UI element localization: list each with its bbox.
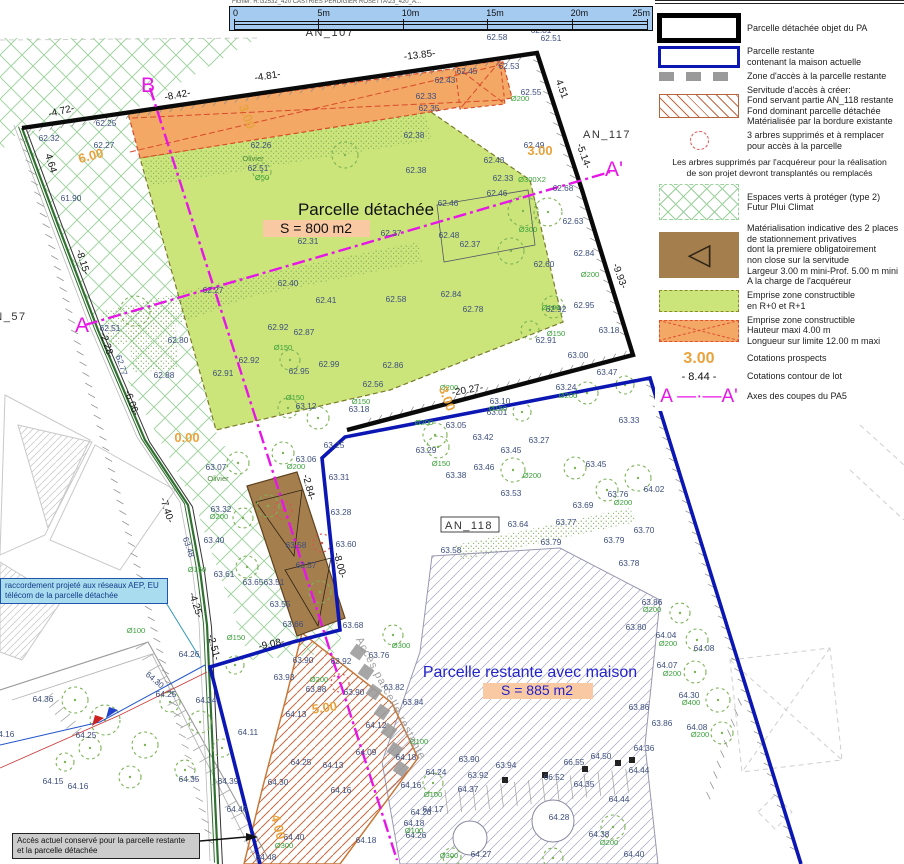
elevation-label: 62.60 [534,259,555,269]
elevation-label: 63.69 [573,500,594,510]
legend-swatch-blue-icon [658,46,740,68]
legend-swatch-wrap [657,184,741,220]
legend-swatch-wrap [657,131,741,150]
elevation-label: 63.12 [296,401,317,411]
tree-diameter-label: Ø200 [511,94,530,103]
elevation-label: 64.13 [323,760,344,770]
tree-diameter-label: Ø200 [663,669,682,678]
elevation-label: 63.84 [403,697,424,707]
legend-item-8: Emprise zone constructible en R+0 et R+1 [657,290,902,312]
tree-diameter-label: Ø100 [127,626,146,635]
scale-tick-label: 10m [402,8,420,18]
elevation-label: 62.92 [239,355,260,365]
elevation-label: 62.95 [289,366,310,376]
elevation-label: 66.52 [544,772,565,782]
elevation-label: 63.47 [597,367,618,377]
tree-diameter-label: Ø150 [489,404,508,413]
tree-diameter-label: Ø150 [274,343,293,352]
elevation-label: 63.79 [541,537,562,547]
elevation-label: 62.78 [463,304,484,314]
elevation-label: 62.56 [363,379,384,389]
title-s800: S = 800 m2 [280,220,352,236]
elevation-label: 62.84 [574,248,595,258]
legend-swatch-wrap: A —·—A' [657,386,741,408]
callout-utilities: raccordement projeté aux réseaux AEP, EU… [0,578,168,604]
legend-text: Emprise zone constructible en R+0 et R+1 [747,290,855,311]
scale-tick-label: 5m [317,8,330,18]
elevation-label: 63.18 [599,325,620,335]
tree-diameter-label: Ø200 [415,418,434,427]
legend-item-1: Parcelle restante contenant la maison ac… [657,46,902,68]
elevation-label: 62.53 [499,61,520,71]
legend-text: Axes des coupes du PA5 [747,391,847,402]
elevation-label: 63.28 [331,507,352,517]
legend-swatch-wrap: 3.00 [657,350,741,368]
tree-diameter-label: Ø150 [227,633,246,642]
scale-tick [487,19,488,30]
elevation-label: 64.18 [356,835,377,845]
tree-diameter-label: Ø150 [432,459,451,468]
tree-diameter-label: Ø50 [255,173,269,182]
elevation-label: 63.92 [331,656,352,666]
elevation-label: 64.39 [218,776,239,786]
elevation-label: 64.02 [644,484,665,494]
neighbor-line [742,648,830,772]
legend-item-6: Espaces verts à protéger (type 2) Futur … [657,184,902,220]
legend-swatch-diamond-icon [659,184,739,220]
elevation-label: 63.60 [336,539,357,549]
elevation-label: 64.25 [76,730,97,740]
tree-diameter-label: Ø200 [659,639,678,648]
tree-diameter-label: Ø400 [682,698,701,707]
scale-bar: 05m10m15m20m25m [229,6,653,31]
elevation-label: 63.53 [501,488,522,498]
elevation-label: 64.36 [33,694,54,704]
elevation-label: 62.51 [248,163,269,173]
elevation-label: 64.40 [624,849,645,859]
legend-note: Les arbres supprimés par l'acquéreur pou… [657,157,902,178]
elevation-label: 63.80 [626,622,647,632]
elevation-label: 63.66 [283,619,304,629]
elevation-label: 64.24 [426,767,447,777]
legend-swatch-wrap [657,290,741,312]
driveway [0,642,268,864]
tree-diameter-label: Ø200 [210,512,229,521]
elevation-label: 64.44 [629,765,650,775]
elevation-label: 62.25 [96,118,117,128]
cotation-lot: -7.40- [157,496,176,524]
legend-swatch-wrap [657,94,741,118]
tree-diameter-label: Ø200 [559,391,578,400]
cotation-lot: -8.42- [164,88,192,103]
elevation-label: 63.90 [459,754,480,764]
callout-access-note: Accès actuel conservé pour la parcelle r… [12,833,200,859]
legend-item-9: Emprise zone constructible Hauteur maxi … [657,315,902,347]
elevation-label: 64.16 [0,729,15,739]
elevation-label: 62.63 [563,216,584,226]
parcel-id-label: AN_57 [0,311,27,323]
elevation-label: 62.68 [553,183,574,193]
elevation-label: 63.77 [556,517,577,527]
elevation-label: 63.42 [473,432,494,442]
tree-diameter-label: Ø200 [614,498,633,507]
legend-swatch-wrap [657,13,741,43]
legend-item-2: Zone d'accès à la parcelle restante [657,71,902,82]
axis-letter: B [141,74,155,97]
legend-item-4: 3 arbres supprimés et à remplacer pour a… [657,130,902,151]
scale-tick [572,19,573,30]
elevation-label: 63.00 [568,350,589,360]
elevation-label: 63.45 [501,445,522,455]
elevation-label: 63.40 [204,535,225,545]
legend-item-12: A —·—A'Axes des coupes du PA5 [657,386,902,408]
elevation-label: 63.90 [293,655,314,665]
elevation-label: 64.25 [291,757,312,767]
legend-item-11: - 8.44 -Cotations contour de lot [657,371,902,383]
elevation-label: 62.58 [386,294,407,304]
elevation-label: 64.16 [68,781,89,791]
elevation-label: 63.58 [286,540,307,550]
elevation-label: 62.27 [203,285,224,295]
elevation-label: 62.40 [278,278,299,288]
title-s885: S = 885 m2 [501,682,573,698]
legend-text: Zone d'accès à la parcelle restante [747,71,886,82]
legend-item-7: ◁Matérialisation indicative des 2 places… [657,223,902,287]
elevation-label: 64.48 [256,852,277,862]
legend-swatch-wrap [657,72,741,81]
legend-text: Servitude d'accès à créer: Fond servant … [747,85,893,127]
elevation-label: 63.86 [652,718,673,728]
page: { "header": { "file_note": "Fichier: R:\… [0,0,904,864]
legend-swatch-orangeX-icon [659,320,739,342]
elevation-label: 62.99 [319,359,340,369]
elevation-label: 64.50 [591,751,612,761]
elevation-label: 63.33 [619,415,640,425]
elevation-label: 64.09 [356,747,377,757]
tree-diameter-label: Ø300 [519,225,538,234]
elevation-label: 62.92 [268,322,289,332]
legend-item-10: 3.00Cotations prospects [657,350,902,368]
legend-swatch-wrap: ◁ [657,232,741,278]
elevation-label: 63.07 [206,462,227,472]
legend-swatch-wrap [657,46,741,68]
elevation-label: 62.58 [487,32,508,42]
elevation-label: 63.92 [468,770,489,780]
scale-tick [647,19,648,30]
legend-swatch-green-icon [659,290,739,312]
elevation-label: 63.94 [496,760,517,770]
elevation-label: 64.30 [268,777,289,787]
scale-tick-label: 20m [571,8,589,18]
tree-diameter-label: Ø100 [405,826,424,835]
elevation-label: 63.68 [343,620,364,630]
elevation-label: 62.45 [457,66,478,76]
elevation-label: 63.51 [264,577,285,587]
elevation-label: 63.58 [441,545,462,555]
axis-letter: A [75,314,89,337]
neighbor-line [860,425,904,465]
elevation-label: 62.37 [381,228,402,238]
elevation-label: 62.38 [406,165,427,175]
elevation-label: 62.87 [294,327,315,337]
tree-diameter-label: Ø150 [547,329,566,338]
legend-text: Cotations contour de lot [747,371,842,382]
elevation-label: 63.05 [446,420,467,430]
elevation-label: 62.43 [484,155,505,165]
elevation-label: 62.32 [39,133,60,143]
elevation-label: 66.55 [564,757,585,767]
elevation-label: 63.25 [324,440,345,450]
legend-item-0: Parcelle détachée objet du PA [657,13,902,43]
elevation-label: 63.45 [586,459,607,469]
tree-diameter-label: Ø200 [310,675,329,684]
legend-swatch-brown-icon: ◁ [659,232,739,278]
elevation-label: 63.61 [214,569,235,579]
elevation-label: 63.31 [329,472,350,482]
elevation-label: 62.51 [541,33,562,43]
elevation-label: 64.25 [156,689,177,699]
neighbor-hatched [18,425,92,528]
elevation-label: 64.08 [694,643,715,653]
title-restante: Parcelle restante avec maison [423,664,637,681]
scale-tick-label: 25m [632,8,650,18]
cotation-lot: 4.51 [553,78,570,100]
scale-tick-label: 15m [486,8,504,18]
elevation-label: 64.36 [634,743,655,753]
legend-swatch-black-icon [657,13,741,43]
elevation-label: 64.27 [471,849,492,859]
legend-text: Parcelle restante contenant la maison ac… [747,46,861,67]
legend-text: Emprise zone constructible Hauteur maxi … [747,315,880,347]
axis-letter: A' [605,158,623,181]
elevation-label: 63.79 [604,535,625,545]
tree-diameter-label: Ø100 [424,790,443,799]
elevation-label: 62.31 [298,236,319,246]
elevation-label: 64.44 [609,794,630,804]
tree-diameter-label: Ø300 [392,641,411,650]
elevation-label: 62.88 [154,370,175,380]
tree-diameter-label: Ø300 [275,841,294,850]
tree-diameter-label: Ø200 [287,462,306,471]
tree-diameter-label: Ø200 [600,838,619,847]
elevation-label: 62.41 [316,295,337,305]
elevation-label: 62.80 [168,335,189,345]
parcel-id-label: AN_117 [583,129,631,141]
elevation-label: 64.35 [179,774,200,784]
elevation-label: 62.43 [435,75,456,85]
elevation-label: 62.51 [100,323,121,333]
elevation-label: 64.34 [196,695,217,705]
scale-tick [403,19,404,30]
elevation-label: 62.38 [404,130,425,140]
legend-swatch-cot-icon: 3.00 [683,350,714,368]
elevation-label: 63.29 [416,445,437,455]
tree-diameter-label: Ø300X2 [518,175,546,184]
elevation-label: 62.33 [493,173,514,183]
legend-text: 3 arbres supprimés et à remplacer pour a… [747,130,884,151]
legend-text: Cotations prospects [747,353,827,364]
legend-item-3: Servitude d'accès à créer: Fond servant … [657,85,902,127]
legend-text: Espaces verts à protéger (type 2) Futur … [747,192,880,213]
elevation-label: 63.65 [243,577,264,587]
elevation-label: 64.13 [286,709,307,719]
elevation-label: 63.98 [306,684,327,694]
scale-ruler [234,21,648,30]
elevation-label: 62.48 [439,230,460,240]
elevation-label: 63.64 [508,519,529,529]
elevation-label: 64.28 [549,812,570,822]
elevation-label: 63.93 [274,672,295,682]
elevation-label: 64.15 [43,776,64,786]
elevation-label: 63.70 [634,525,655,535]
tree-diameter-label: Ø150 [286,393,305,402]
cotation-prospect: 0.00 [174,430,199,445]
elevation-label: 62.33 [416,91,437,101]
tree-diameter-label: Ø300 [440,851,459,860]
elevation-label: 62.95 [574,300,595,310]
legend-swatch-wrap: - 8.44 - [657,371,741,383]
elevation-label: 64.16 [401,780,422,790]
legend-swatch-hatch-icon [659,94,739,118]
elevation-label: 63.78 [619,558,640,568]
title-detachee: Parcelle détachée [298,200,434,219]
elevation-label: 63.90 [344,687,365,697]
tree-diameter-label: Ø150 [352,397,371,406]
elevation-label: 64.26 [411,807,432,817]
elevation-label: 63.86 [629,702,650,712]
cotation-lot: -5.14- [574,142,593,170]
legend-text: Parcelle détachée objet du PA [747,23,867,34]
legend-text: Matérialisation indicative des 2 places … [747,223,898,287]
parcel-id-label: AN_118 [445,520,493,532]
elevation-label: 62.46 [438,198,459,208]
tree-diameter-label: Ø200 [523,471,542,480]
cotation-lot: -4.81- [254,69,282,84]
elevation-label: 62.84 [441,289,462,299]
elevation-label: 63.27 [529,435,550,445]
elevation-label: 62.86 [383,360,404,370]
elevation-label: 64.12 [366,720,387,730]
tree-diameter-label: Ø150 [188,565,207,574]
cotation-lot: -13.85- [403,48,436,63]
elevation-label: 63.55 [270,599,291,609]
elevation-label: 61.90 [61,193,82,203]
scale-tick [318,19,319,30]
elevation-label: 64.35 [574,779,595,789]
elevation-label: 63.57 [296,560,317,570]
elevation-label: 62.91 [213,368,234,378]
elevation-label: 64.11 [238,727,259,737]
olivier-label: Olivier [242,154,264,163]
elevation-label: 64.46 [227,804,248,814]
tree-diameter-label: Ø200 [581,270,600,279]
legend-swatch-axis-icon: A —·—A' [660,386,738,408]
elevation-label: 63.38 [446,470,467,480]
legend-swatch-dashes-icon [659,72,739,81]
elevation-label: 62.26 [251,140,272,150]
legend-panel: Parcelle détachée objet du PAParcelle re… [655,0,904,411]
scale-tick-label: 0 [233,8,238,18]
tree-diameter-label: Ø100 [542,303,561,312]
olivier-label: Olivier [207,474,229,483]
legend-swatch-lot-icon: - 8.44 - [682,371,717,383]
elevation-label: 63.46 [474,462,495,472]
cotation-prospect: 3.00 [527,143,552,158]
elevation-label: 62.46 [487,188,508,198]
elevation-label: 64.16 [331,785,352,795]
neighbor-hatched [0,562,62,660]
tree-diameter-label: Ø200 [643,605,662,614]
elevation-label: 62.37 [460,239,481,249]
legend-swatch-tree-icon [690,131,709,150]
cotation-lot: -4.25- [186,591,205,619]
tree-diameter-label: Ø200 [691,730,710,739]
elevation-label: 64.37 [458,784,479,794]
neighbor-line [850,470,904,520]
legend-swatch-wrap [657,320,741,342]
elevation-label: 64.26 [179,649,200,659]
elevation-label: 62.35 [419,103,440,113]
scale-tick [234,19,235,30]
